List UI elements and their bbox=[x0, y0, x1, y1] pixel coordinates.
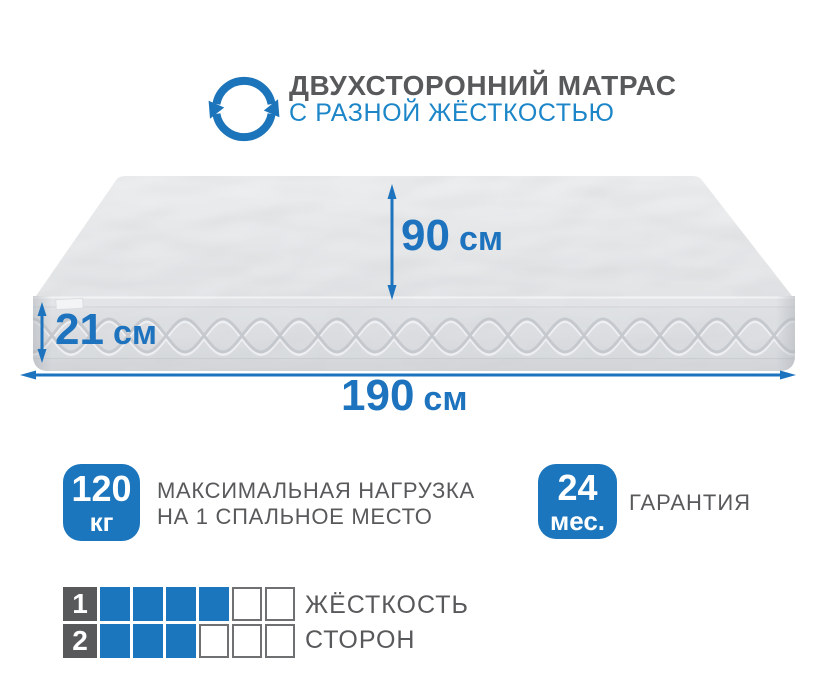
firmness-indicator: 1 2 bbox=[63, 587, 295, 661]
height-unit: см bbox=[459, 222, 503, 256]
firmness-cells-side-1 bbox=[100, 587, 295, 621]
height-dimension-label: 90 см bbox=[401, 214, 503, 258]
warranty-caption: ГАРАНТИЯ bbox=[629, 490, 751, 516]
firmness-cell-empty bbox=[265, 587, 295, 621]
firmness-cell-filled bbox=[166, 587, 196, 621]
max-load-caption: МАКСИМАЛЬНАЯ НАГРУЗКА НА 1 СПАЛЬНОЕ МЕСТ… bbox=[157, 478, 475, 530]
firmness-caption-line2: СТОРОН bbox=[305, 626, 415, 655]
firmness-cell-filled bbox=[133, 624, 163, 658]
max-load-value: 120 bbox=[71, 471, 131, 507]
firmness-cells-side-2 bbox=[100, 624, 295, 658]
firmness-cell-empty bbox=[199, 624, 229, 658]
warranty-value: 24 bbox=[557, 470, 597, 506]
firmness-cell-filled bbox=[100, 587, 130, 621]
firmness-cell-filled bbox=[100, 624, 130, 658]
width-value: 190 bbox=[341, 374, 414, 418]
max-load-caption-line2: НА 1 СПАЛЬНОЕ МЕСТО bbox=[157, 504, 475, 530]
max-load-unit: кг bbox=[90, 509, 114, 535]
firmness-row-side-1: 1 bbox=[63, 587, 295, 621]
width-dimension-label: 190 см bbox=[341, 374, 467, 418]
height-value: 90 bbox=[401, 214, 450, 258]
firmness-cell-empty bbox=[232, 624, 262, 658]
thickness-dimension-label: 21 см bbox=[55, 308, 157, 352]
max-load-badge: 120 кг bbox=[63, 464, 140, 541]
warranty-badge: 24 мес. bbox=[538, 464, 617, 539]
side-1-label: 1 bbox=[63, 587, 97, 621]
side-2-label: 2 bbox=[63, 624, 97, 658]
mattress-infographic: ДВУХСТОРОННИЙ МАТРАС С РАЗНОЙ ЖЁСТКОСТЬЮ bbox=[0, 0, 816, 700]
max-load-caption-line1: МАКСИМАЛЬНАЯ НАГРУЗКА bbox=[157, 478, 475, 504]
thickness-unit: см bbox=[113, 316, 157, 350]
firmness-caption-line1: ЖЁСТКОСТЬ bbox=[305, 591, 469, 620]
firmness-cell-empty bbox=[265, 624, 295, 658]
width-unit: см bbox=[423, 382, 467, 416]
firmness-cell-filled bbox=[166, 624, 196, 658]
warranty-unit: мес. bbox=[550, 508, 605, 534]
firmness-row-side-2: 2 bbox=[63, 624, 295, 658]
thickness-value: 21 bbox=[55, 308, 104, 352]
firmness-cell-empty bbox=[232, 587, 262, 621]
firmness-cell-filled bbox=[133, 587, 163, 621]
firmness-cell-filled bbox=[199, 587, 229, 621]
